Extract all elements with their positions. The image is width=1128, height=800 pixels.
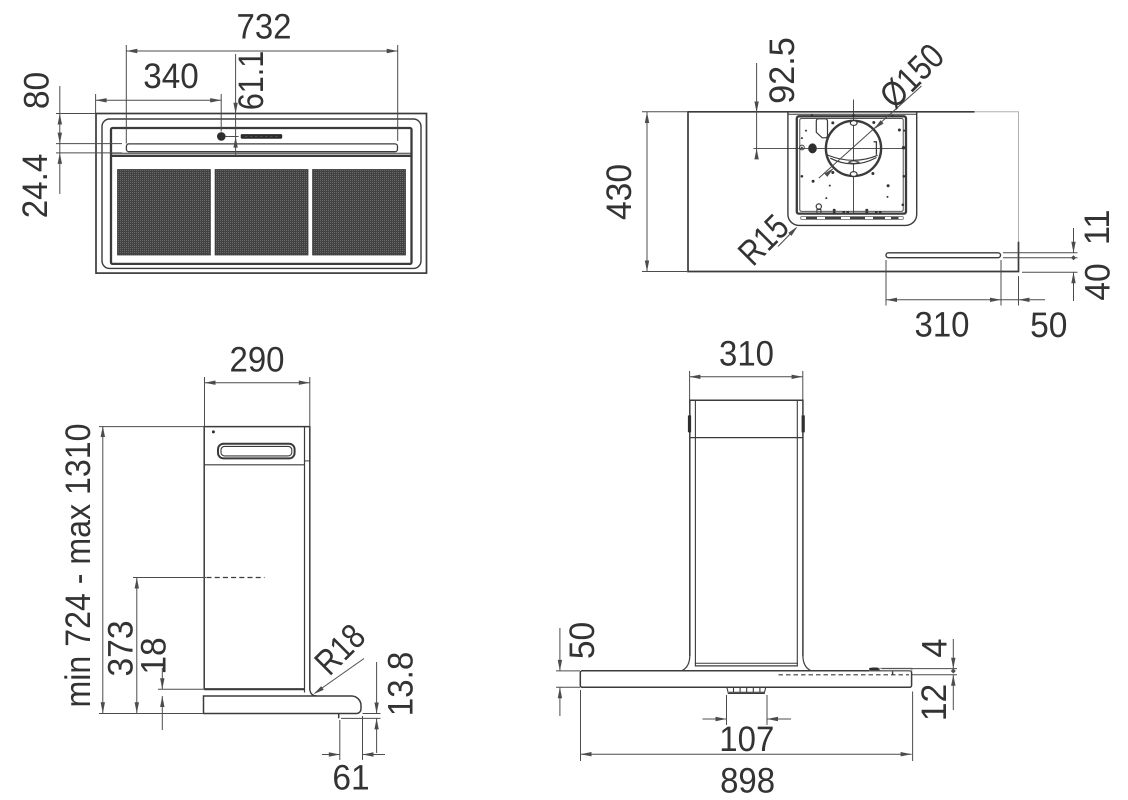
svg-text:11: 11 — [1077, 209, 1117, 245]
svg-text:18: 18 — [134, 637, 174, 674]
svg-text:732: 732 — [237, 7, 292, 47]
svg-text:50: 50 — [1030, 305, 1067, 345]
svg-text:13.8: 13.8 — [381, 652, 421, 717]
svg-text:Ø150: Ø150 — [872, 36, 952, 116]
svg-text:12: 12 — [914, 684, 954, 721]
svg-text:310: 310 — [915, 305, 970, 345]
svg-text:R15: R15 — [730, 207, 796, 273]
svg-text:430: 430 — [599, 164, 639, 220]
svg-text:898: 898 — [720, 761, 775, 800]
svg-text:340: 340 — [143, 56, 199, 96]
svg-text:310: 310 — [719, 334, 774, 374]
svg-text:40: 40 — [1078, 263, 1118, 300]
svg-text:R18: R18 — [307, 616, 373, 682]
svg-text:61: 61 — [332, 758, 369, 798]
svg-text:107: 107 — [719, 719, 774, 759]
svg-text:92.5: 92.5 — [762, 37, 802, 104]
svg-text:24.4: 24.4 — [15, 154, 55, 219]
svg-text:4: 4 — [915, 638, 955, 657]
svg-text:61.1: 61.1 — [231, 51, 271, 110]
svg-text:290: 290 — [230, 340, 285, 380]
svg-text:50: 50 — [562, 622, 602, 659]
svg-text:min 724 - max 1310: min 724 - max 1310 — [58, 424, 98, 708]
svg-text:80: 80 — [17, 72, 57, 109]
